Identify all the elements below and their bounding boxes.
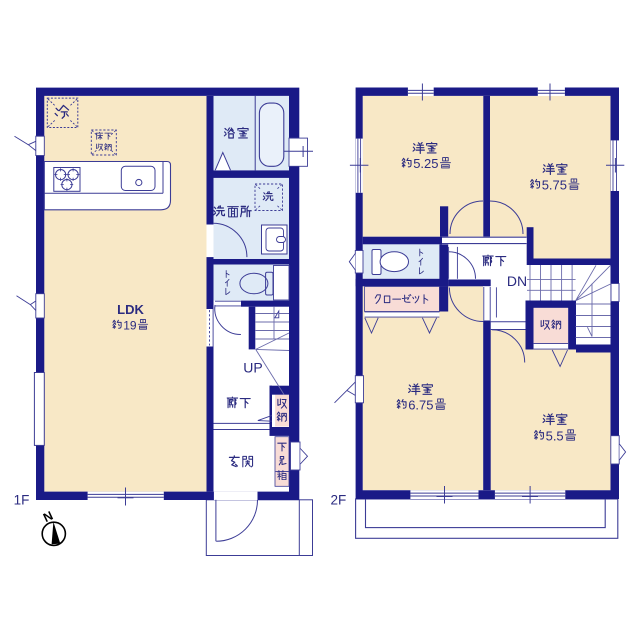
svg-text:1F: 1F [14,492,30,507]
svg-text:5.5: 5.5 [546,428,564,443]
svg-text:6.75: 6.75 [408,397,433,412]
svg-text:5.75: 5.75 [542,177,567,192]
svg-text:LDK: LDK [117,302,144,317]
svg-text:2F: 2F [331,492,347,507]
svg-text:UP: UP [243,360,262,376]
svg-text:DN: DN [507,273,527,289]
svg-text:5.25: 5.25 [413,156,438,171]
svg-text:19: 19 [123,318,137,332]
